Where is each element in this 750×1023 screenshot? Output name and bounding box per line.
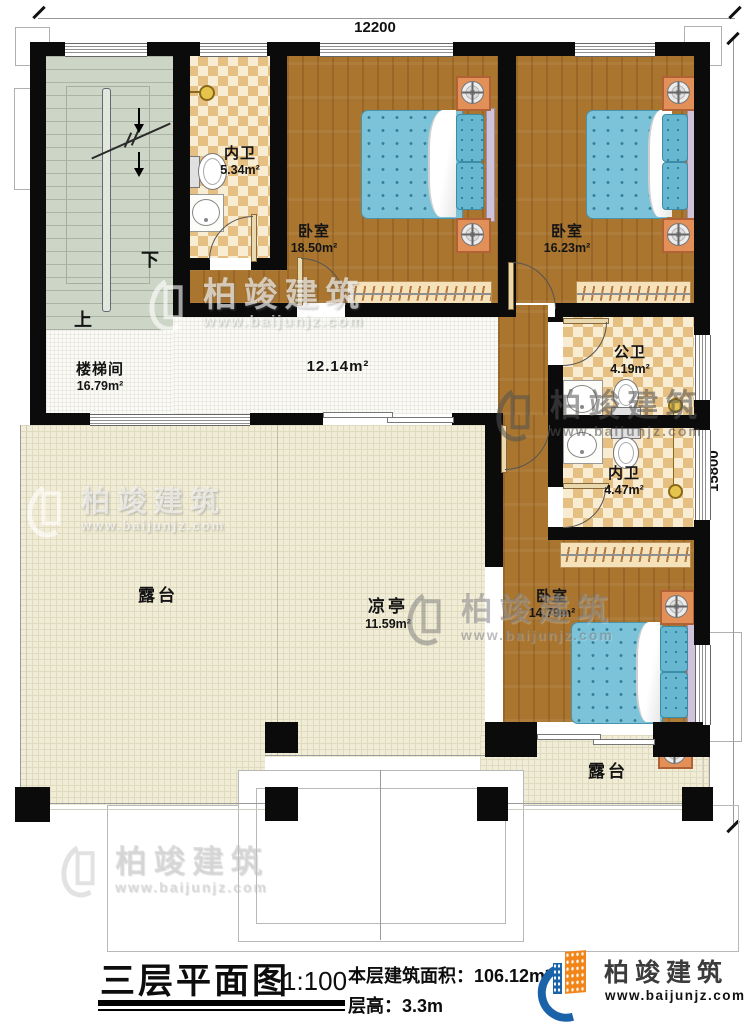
- pavilion-railing: [265, 755, 485, 756]
- towel-ring: [199, 85, 215, 101]
- floor-height-row: 层高：3.3m: [348, 992, 443, 1018]
- bed-pillow: [456, 162, 484, 210]
- wall-segment: [548, 527, 694, 540]
- title-underline: [98, 1000, 345, 1006]
- stair-railing: [102, 88, 111, 312]
- plan-scale: 1:100: [282, 966, 347, 997]
- floor-height-label: 层高：: [348, 996, 402, 1016]
- window: [695, 430, 711, 520]
- column: [15, 787, 50, 822]
- column: [477, 787, 508, 821]
- bed-pillow: [662, 114, 688, 162]
- wall-segment: [485, 722, 537, 757]
- dimension-line-right: [733, 40, 734, 828]
- sliding-door: [323, 412, 393, 418]
- wall-segment: [188, 258, 210, 270]
- window: [90, 414, 250, 426]
- wall-segment: [147, 42, 200, 56]
- bed-sheet: [636, 622, 660, 722]
- terrace-railing: [480, 803, 710, 804]
- title-underline: [98, 1009, 345, 1011]
- wall-segment: [30, 42, 46, 425]
- room-label-public-bath: 公卫4.19m²: [598, 341, 662, 376]
- window: [575, 43, 655, 57]
- terrace-railing: [20, 425, 21, 809]
- plan-title: 三层平面图: [100, 953, 290, 1004]
- room-label-stairwell: 楼梯间16.79m²: [60, 358, 140, 393]
- wall-segment: [555, 303, 694, 317]
- window: [320, 43, 453, 57]
- wall-segment: [267, 42, 320, 56]
- watermark: 柏竣建筑www.baijunjz.com: [150, 276, 366, 332]
- sink: [192, 199, 220, 226]
- sliding-door: [537, 734, 601, 740]
- stair-up-label: 上: [68, 306, 98, 332]
- stair-direction-arrow: [138, 152, 140, 168]
- column: [265, 722, 298, 753]
- entry-steps-divider: [380, 770, 381, 940]
- window: [200, 43, 267, 57]
- lamp: [667, 223, 690, 246]
- watermark-logo-icon: [489, 381, 548, 448]
- stair-direction-arrow: [138, 108, 140, 124]
- lamp: [461, 223, 484, 246]
- floor-height-value: 3.3m: [402, 996, 443, 1016]
- room-label-terrace-left: 露台: [120, 581, 196, 606]
- room-label-corridor: 12.14m²: [300, 358, 376, 375]
- towel-hook: [668, 484, 683, 499]
- room-label-bedroom2: 卧室16.23m²: [528, 220, 606, 255]
- sliding-door: [593, 739, 655, 745]
- watermark: 柏竣建筑www.baijunjz.com: [62, 842, 269, 898]
- watermark-logo-icon: [142, 271, 201, 338]
- terrace-railing: [20, 809, 280, 810]
- bed-sheet: [428, 110, 456, 217]
- floor-plan-canvas: 12200 15800 下 上: [0, 0, 750, 1023]
- stair-direction-arrow: [134, 168, 144, 177]
- watermark-logo-icon: [54, 837, 113, 904]
- sliding-door: [387, 417, 454, 423]
- wall-segment: [694, 520, 710, 645]
- wall-segment: [694, 42, 710, 335]
- window: [695, 645, 711, 725]
- brand-logo-icon: [540, 950, 598, 1014]
- floor-area-label: 本层建筑面积：: [348, 966, 474, 986]
- watermark-logo-icon: [20, 477, 79, 544]
- room-label-inner-bath: 内卫4.47m²: [592, 462, 656, 497]
- wall-segment: [548, 317, 563, 322]
- lamp: [461, 81, 484, 104]
- stair-direction-arrow: [134, 124, 144, 133]
- stair-down-label: 下: [135, 246, 165, 272]
- wall-segment: [30, 413, 90, 425]
- brand-name: 柏竣建筑: [604, 953, 728, 989]
- terrace-railing: [480, 809, 710, 810]
- wardrobe: [560, 542, 691, 568]
- terrace-railing: [26, 425, 27, 809]
- watermark: 柏竣建筑www.baijunjz.com: [497, 386, 704, 442]
- column: [682, 787, 713, 821]
- brand-url: www.baijunjz.com: [605, 988, 746, 1003]
- lamp: [667, 81, 690, 104]
- wall-segment: [250, 413, 323, 425]
- dimension-top-value: 12200: [340, 19, 410, 36]
- column: [265, 787, 298, 821]
- terrace-pavilion-divider: [277, 425, 278, 755]
- wall-segment: [653, 722, 703, 757]
- room-label-terrace-right: 露台: [570, 757, 646, 782]
- bed-pillow: [456, 114, 484, 162]
- watermark: 柏竣建筑www.baijunjz.com: [408, 590, 615, 646]
- dimension-tick: [728, 6, 741, 19]
- room-label-bath-top: 内卫5.34m²: [205, 142, 275, 177]
- lamp: [665, 595, 688, 618]
- floor-area-row: 本层建筑面积：106.12m²: [348, 962, 551, 988]
- wall-segment: [345, 303, 512, 317]
- window: [65, 43, 147, 57]
- wall-segment: [452, 413, 485, 425]
- bed-pillow: [660, 626, 688, 672]
- bed-pillow: [662, 162, 688, 210]
- terrace-railing: [20, 803, 280, 804]
- bed-headboard: [486, 108, 495, 222]
- watermark: 柏竣建筑www.baijunjz.com: [28, 482, 226, 538]
- bed-pillow: [660, 672, 688, 718]
- room-label-bedroom1: 卧室18.50m²: [275, 220, 353, 255]
- watermark-logo-icon: [400, 585, 459, 652]
